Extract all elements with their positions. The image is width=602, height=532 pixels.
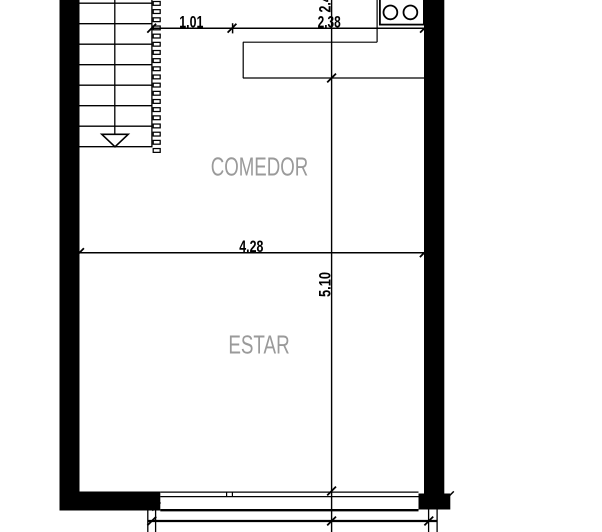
svg-text:2.38: 2.38 — [318, 14, 341, 32]
svg-text:4.28: 4.28 — [239, 238, 263, 256]
svg-text:5.10: 5.10 — [317, 272, 335, 297]
svg-text:1.01: 1.01 — [179, 14, 203, 32]
svg-text:COMEDOR: COMEDOR — [211, 151, 308, 181]
svg-text:ESTAR: ESTAR — [228, 331, 289, 360]
svg-text:2.40: 2.40 — [317, 0, 335, 13]
